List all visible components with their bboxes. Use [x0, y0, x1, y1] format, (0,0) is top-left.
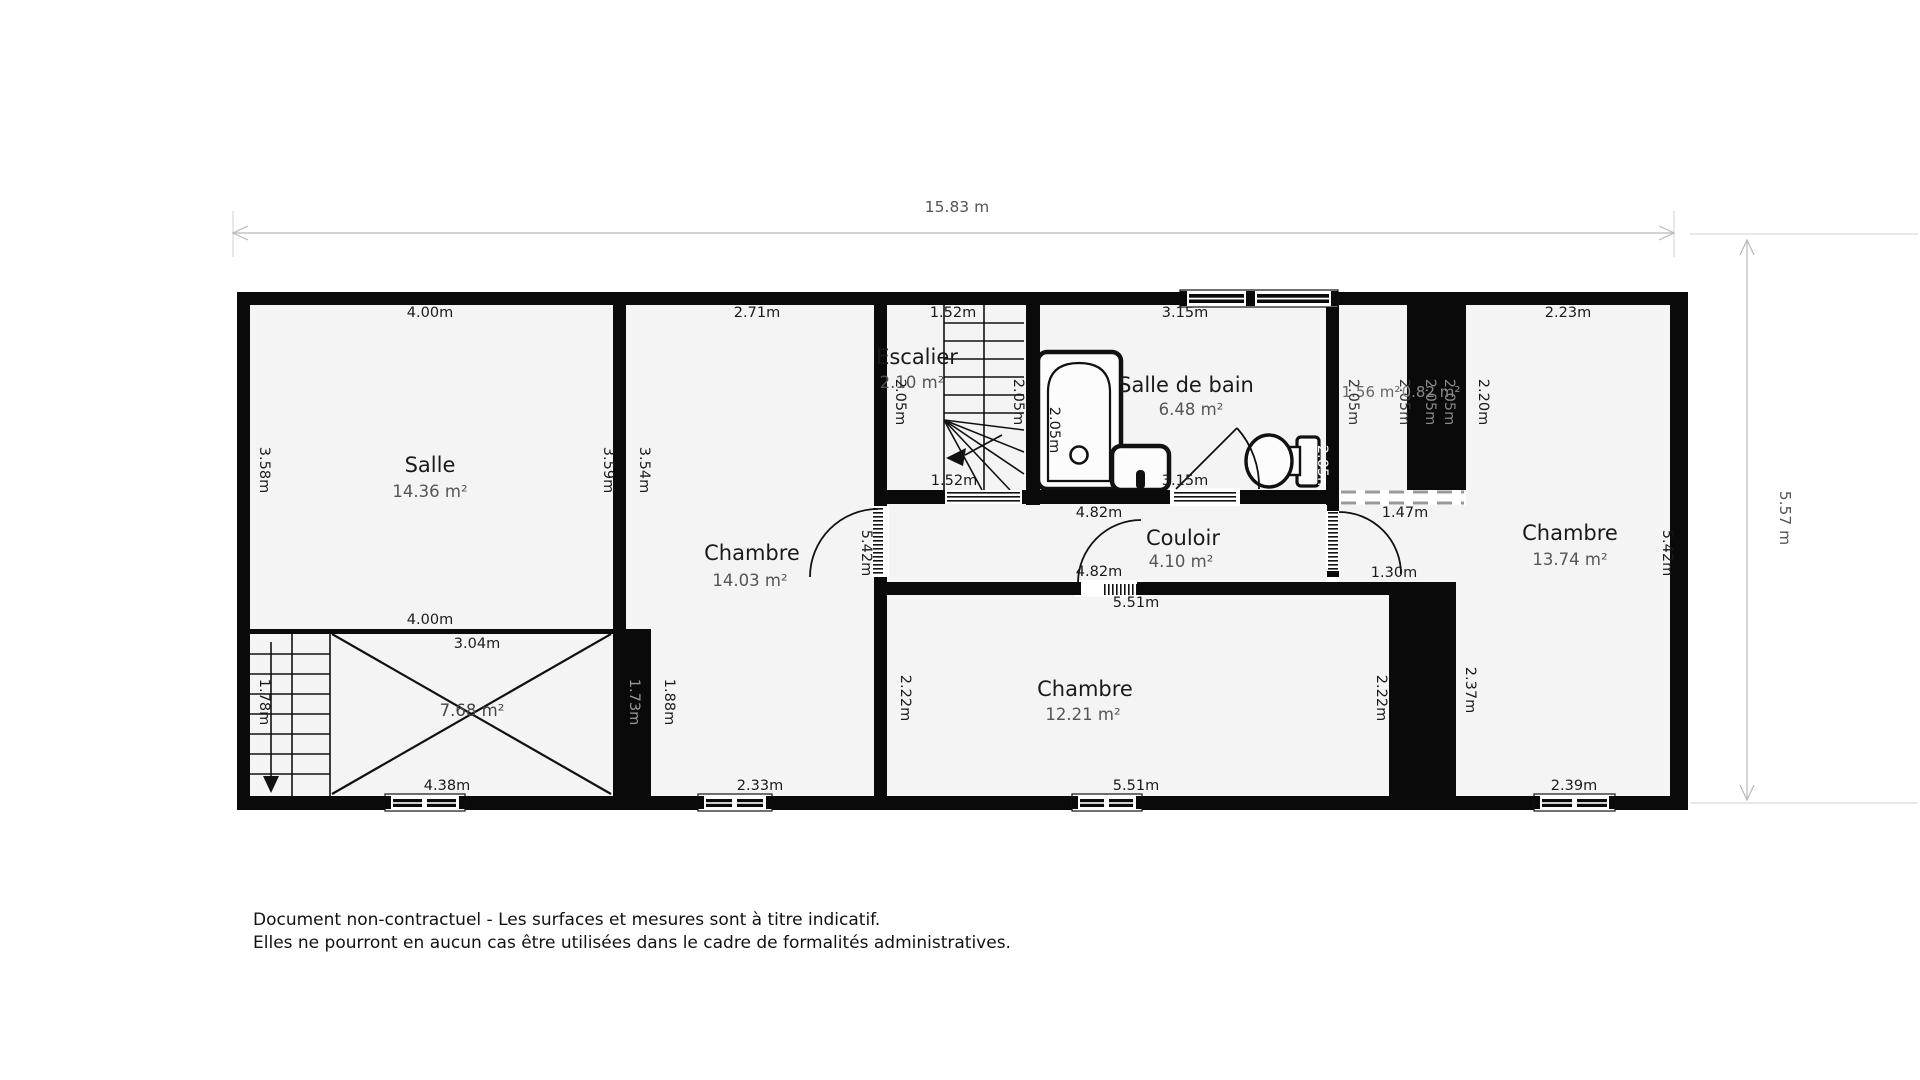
plan-label: 2.71m: [734, 305, 780, 321]
plan-label: 6.48 m²: [1159, 400, 1224, 419]
plan-label: 2.33m: [737, 778, 783, 794]
plan-label: Chambre: [1522, 521, 1618, 545]
plan-label: 12.21 m²: [1045, 705, 1120, 724]
plan-label: 1.47m: [1382, 505, 1428, 521]
window-bottom-2: [698, 794, 772, 811]
plan-label: 5.42m: [1659, 530, 1675, 576]
plan-label: 2.20m: [1475, 379, 1491, 425]
plan-label: 2.37m: [1462, 667, 1478, 713]
disclaimer-line-1: Document non-contractuel - Les surfaces …: [253, 910, 880, 930]
plan-label: 1.88m: [661, 679, 677, 725]
plan-label: Salle de bain: [1118, 373, 1254, 397]
plan-label: 2.39m: [1551, 778, 1597, 794]
plan-label: 5.42m: [858, 530, 874, 576]
plan-label: 14.03 m²: [712, 571, 787, 590]
plan-label: 2.05m: [1314, 445, 1330, 491]
plan-label: 4.10 m²: [1149, 552, 1214, 571]
plan-label: 2.22m: [897, 675, 913, 721]
plan-label: 1.52m: [930, 305, 976, 321]
plan-label: 4.38m: [424, 778, 470, 794]
disclaimer: Document non-contractuel - Les surfaces …: [253, 910, 1011, 953]
plan-label: 15.83 m: [925, 198, 989, 216]
plan-label: 1.78m: [256, 679, 272, 725]
toilet: [1246, 435, 1319, 487]
plan-label: 5.51m: [1113, 595, 1159, 611]
plan-label: 13.74 m²: [1532, 550, 1607, 569]
washbasin: [1112, 446, 1169, 490]
plan-label: 3.15m: [1162, 473, 1208, 489]
floor-plan: 15.83 m5.57 mSalle14.36 m²4.00m4.00m3.58…: [0, 0, 1920, 1080]
plan-label: 4.82m: [1076, 564, 1122, 580]
plan-label: 2.10 m²: [880, 373, 945, 392]
plan-label: Salle: [405, 453, 456, 477]
plan-label: 1.52m: [931, 473, 977, 489]
plan-label: Chambre: [704, 541, 800, 565]
plan-label: 3.54m: [636, 447, 652, 493]
plan-label: 14.36 m²: [392, 482, 467, 501]
plan-label: Escalier: [876, 345, 958, 369]
plan-label: 1.73m: [626, 679, 642, 725]
disclaimer-line-2: Elles ne pourront en aucun cas être util…: [253, 933, 1011, 953]
plan-label: 5.57 m: [1776, 491, 1794, 546]
plan-label: 1.30m: [1371, 565, 1417, 581]
plan-label: 4.00m: [407, 305, 453, 321]
window-bottom-1: [385, 794, 465, 811]
plan-label: 3.58m: [256, 447, 272, 493]
plan-label: 7.68 m²: [440, 701, 505, 720]
dimension-width: [233, 211, 1674, 257]
plan-label: 3.04m: [454, 636, 500, 652]
plan-label: 2.05m: [892, 379, 908, 425]
plan-label: 2.05m: [1046, 407, 1062, 453]
plan-label: 3.15m: [1162, 305, 1208, 321]
window-bottom-3: [1072, 794, 1142, 811]
plan-label: Chambre: [1037, 677, 1133, 701]
plan-label: Couloir: [1146, 526, 1220, 550]
plan-label: 3.59m: [600, 447, 616, 493]
dimension-height: [1690, 234, 1918, 803]
stair-threshold: [945, 490, 1022, 504]
plan-label: 2.05m: [1345, 379, 1361, 425]
dashed-passage: [1339, 490, 1466, 505]
plan-label: 2.05m: [1422, 379, 1438, 425]
window-bottom-4: [1534, 794, 1615, 811]
plan-label: 2.05m: [1441, 379, 1457, 425]
plan-label: 5.51m: [1113, 778, 1159, 794]
plan-label: 2.23m: [1545, 305, 1591, 321]
plan-label: 4.82m: [1076, 505, 1122, 521]
plan-label: 4.00m: [407, 612, 453, 628]
plan-label: 2.22m: [1373, 675, 1389, 721]
washbasin-tap-icon: [1136, 470, 1145, 489]
plan-label: 2.05m: [1010, 379, 1026, 425]
